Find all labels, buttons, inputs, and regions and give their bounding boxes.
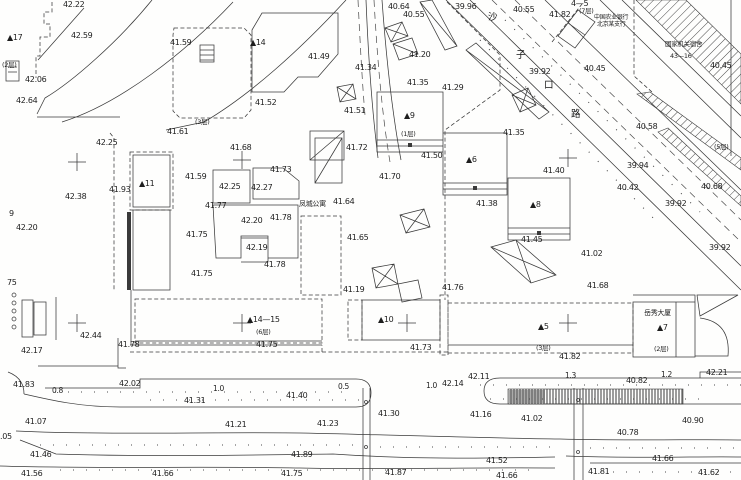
braced-structures: [315, 0, 556, 302]
hatched-building: [636, 0, 741, 104]
stair-hatch: [200, 45, 214, 62]
center-buildings: [110, 133, 448, 352]
site-plan-canvas: 中国农业银行 北京某支行 国家机关宿舍 43—16 凤城公寓 岳秀大厦 42.2…: [0, 0, 741, 480]
survey-cross: [559, 314, 577, 332]
boulevard: [446, 0, 741, 290]
tree-row-boulevard: [480, 20, 700, 225]
block-a-parcel: [173, 28, 251, 118]
south-roads: [0, 293, 741, 480]
center-parcel-dashed: [110, 133, 448, 352]
survey-cross: [68, 153, 86, 171]
nw-road-lines: [6, 0, 346, 130]
survey-grid-crosses: [68, 149, 577, 332]
nw-fence: [36, 2, 52, 78]
survey-cross: [398, 314, 416, 332]
survey-cross: [68, 314, 86, 332]
bank-building: [558, 10, 595, 48]
survey-cross: [233, 151, 251, 169]
parcel-boundary-east: [445, 0, 652, 300]
survey-cross: [559, 149, 577, 167]
south-buildings: [135, 295, 738, 357]
post-chain: [12, 293, 16, 329]
survey-cross: [233, 314, 251, 332]
lamp-symbols: [365, 399, 580, 454]
site-plan-linework: [0, 0, 741, 480]
east-buildings: [377, 92, 570, 240]
